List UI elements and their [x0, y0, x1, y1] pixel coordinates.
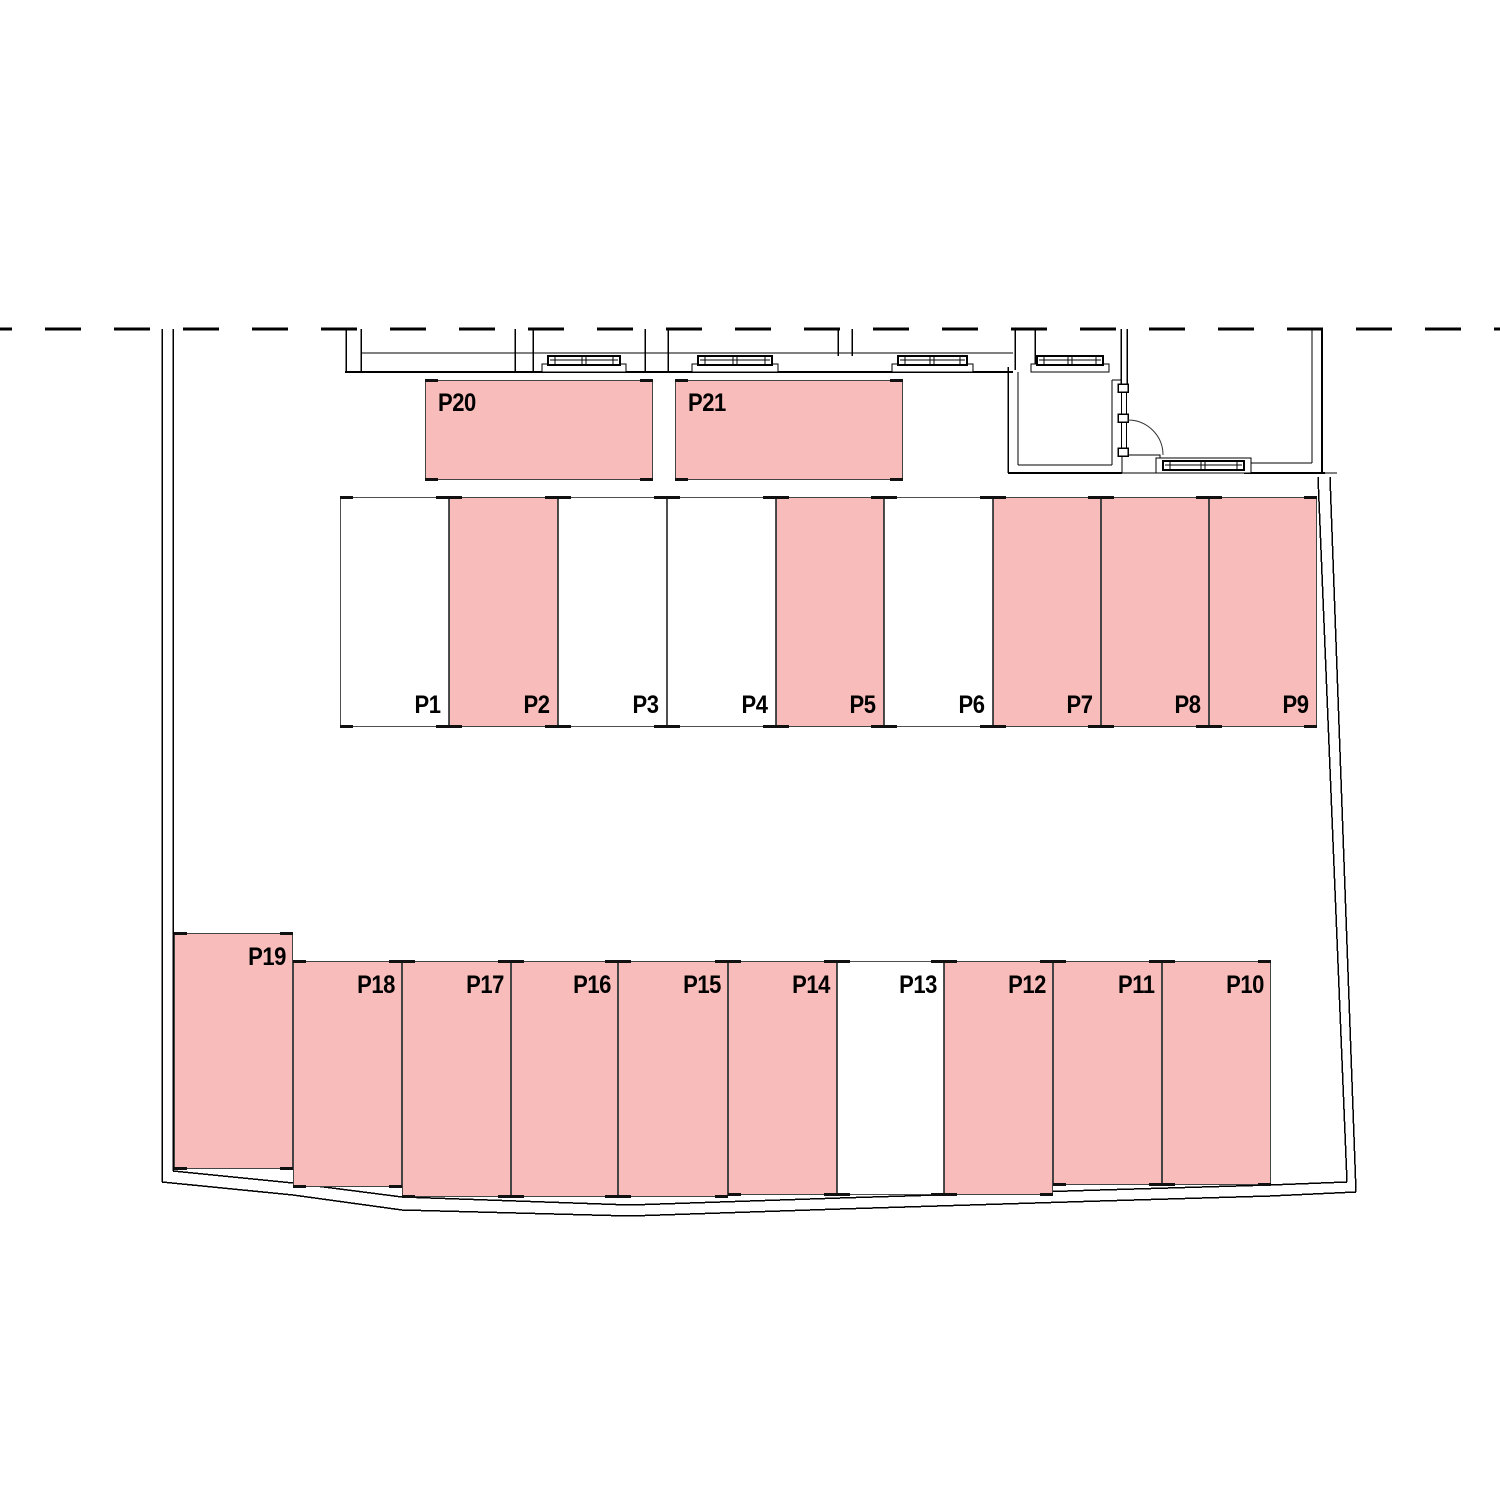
stall-P9[interactable]: P9 [1209, 497, 1317, 727]
stall-corner-tick [993, 725, 1006, 728]
stall-P2[interactable]: P2 [449, 497, 558, 727]
stall-corner-tick [436, 725, 449, 728]
stall-corner-tick [1304, 496, 1317, 499]
stall-label: P11 [1118, 971, 1155, 1000]
stall-P15[interactable]: P15 [618, 961, 728, 1197]
stall-corner-tick [425, 379, 438, 382]
stall-P14[interactable]: P14 [728, 961, 837, 1195]
stall-corner-tick [763, 725, 776, 728]
stall-corner-tick [640, 379, 653, 382]
stall-label: P10 [1226, 971, 1264, 1000]
stall-corner-tick [837, 960, 850, 963]
window-icon [1031, 356, 1109, 372]
stall-P20[interactable]: P20 [425, 380, 653, 480]
stall-corner-tick [884, 725, 897, 728]
stall-P5[interactable]: P5 [776, 497, 884, 727]
stall-P18[interactable]: P18 [293, 961, 402, 1187]
stall-P1[interactable]: P1 [340, 497, 449, 727]
stall-label: P14 [792, 971, 830, 1000]
stall-corner-tick [776, 725, 789, 728]
window-icon [692, 356, 778, 372]
stall-label: P15 [683, 971, 721, 1000]
stall-corner-tick [1209, 725, 1222, 728]
stall-corner-tick [545, 496, 558, 499]
stall-corner-tick [728, 960, 741, 963]
stall-P3[interactable]: P3 [558, 497, 667, 727]
stall-corner-tick [667, 725, 680, 728]
stall-corner-tick [1053, 1183, 1066, 1186]
parking-plan: P20P21P1P2P3P4P5P6P7P8P9P19P18P17P16P15P… [0, 0, 1500, 1500]
stall-corner-tick [293, 1185, 306, 1188]
stall-P4[interactable]: P4 [667, 497, 776, 727]
stall-corner-tick [884, 496, 897, 499]
stall-corner-tick [1088, 725, 1101, 728]
window-icon [892, 356, 973, 372]
stall-P17[interactable]: P17 [402, 961, 511, 1197]
stall-corner-tick [654, 725, 667, 728]
stall-label: P2 [524, 691, 550, 720]
stall-corner-tick [280, 932, 293, 935]
stall-label: P4 [742, 691, 768, 720]
stall-corner-tick [545, 725, 558, 728]
stall-corner-tick [890, 379, 903, 382]
stall-corner-tick [640, 478, 653, 481]
stall-corner-tick [558, 725, 571, 728]
stall-P21[interactable]: P21 [675, 380, 903, 480]
stall-corner-tick [618, 1195, 631, 1198]
stall-corner-tick [944, 1193, 957, 1196]
plan-drawing [0, 0, 1500, 1500]
stall-corner-tick [1088, 496, 1101, 499]
stall-corner-tick [715, 1195, 728, 1198]
stall-label: P13 [899, 971, 937, 1000]
stall-label: P20 [438, 389, 476, 418]
stall-corner-tick [618, 960, 631, 963]
stall-P7[interactable]: P7 [993, 497, 1101, 727]
stall-corner-tick [449, 725, 462, 728]
stall-label: P5 [850, 691, 876, 720]
stall-corner-tick [511, 960, 524, 963]
stall-corner-tick [340, 725, 353, 728]
stall-label: P16 [573, 971, 611, 1000]
stall-corner-tick [389, 960, 402, 963]
stall-corner-tick [944, 960, 957, 963]
stall-P16[interactable]: P16 [511, 961, 618, 1197]
stall-corner-tick [1101, 496, 1114, 499]
stall-corner-tick [511, 1195, 524, 1198]
door-swing-arc [1128, 420, 1163, 455]
stall-corner-tick [1162, 1183, 1175, 1186]
stall-P8[interactable]: P8 [1101, 497, 1209, 727]
door-icon [1118, 384, 1128, 456]
stall-corner-tick [1209, 496, 1222, 499]
stall-corner-tick [1196, 725, 1209, 728]
stall-corner-tick [174, 1167, 187, 1170]
stall-corner-tick [824, 1193, 837, 1196]
stall-corner-tick [890, 478, 903, 481]
stall-corner-tick [174, 932, 187, 935]
stall-corner-tick [498, 960, 511, 963]
stall-corner-tick [675, 478, 688, 481]
stall-label: P12 [1008, 971, 1046, 1000]
stall-corner-tick [1258, 960, 1271, 963]
stall-label: P8 [1175, 691, 1201, 720]
stall-corner-tick [728, 1193, 741, 1196]
stall-label: P1 [415, 691, 441, 720]
window-icon [542, 356, 626, 372]
stall-corner-tick [449, 496, 462, 499]
stall-corner-tick [871, 725, 884, 728]
stall-corner-tick [837, 1193, 850, 1196]
stall-corner-tick [280, 1167, 293, 1170]
stall-corner-tick [980, 496, 993, 499]
stall-corner-tick [605, 960, 618, 963]
stall-corner-tick [675, 379, 688, 382]
stall-corner-tick [1162, 960, 1175, 963]
stall-corner-tick [402, 1195, 415, 1198]
stall-label: P18 [357, 971, 395, 1000]
stall-corner-tick [1149, 960, 1162, 963]
stall-corner-tick [293, 960, 306, 963]
stall-label: P21 [688, 389, 726, 418]
stall-label: P6 [959, 691, 985, 720]
stall-corner-tick [1040, 960, 1053, 963]
stall-corner-tick [402, 960, 415, 963]
stall-corner-tick [824, 960, 837, 963]
stall-corner-tick [667, 496, 680, 499]
stall-corner-tick [1304, 725, 1317, 728]
stall-corner-tick [605, 1195, 618, 1198]
stall-corner-tick [715, 960, 728, 963]
stall-corner-tick [558, 496, 571, 499]
stall-corner-tick [1149, 1183, 1162, 1186]
stall-corner-tick [931, 1193, 944, 1196]
stall-corner-tick [993, 496, 1006, 499]
stall-corner-tick [1196, 496, 1209, 499]
stall-corner-tick [436, 496, 449, 499]
stall-corner-tick [340, 496, 353, 499]
stall-corner-tick [763, 496, 776, 499]
stall-corner-tick [1040, 1193, 1053, 1196]
window-icon [1156, 458, 1251, 473]
stall-corner-tick [931, 960, 944, 963]
stall-corner-tick [1053, 960, 1066, 963]
stall-label: P3 [633, 691, 659, 720]
stall-label: P17 [466, 971, 504, 1000]
stall-corner-tick [871, 496, 884, 499]
stall-P12[interactable]: P12 [944, 961, 1053, 1195]
stall-label: P19 [248, 943, 286, 972]
stall-label: P9 [1283, 691, 1309, 720]
stall-corner-tick [776, 496, 789, 499]
stall-corner-tick [498, 1195, 511, 1198]
stall-corner-tick [654, 496, 667, 499]
stall-P6[interactable]: P6 [884, 497, 993, 727]
stall-corner-tick [389, 1185, 402, 1188]
stall-P11[interactable]: P11 [1053, 961, 1162, 1185]
stall-corner-tick [980, 725, 993, 728]
stall-P13[interactable]: P13 [837, 961, 944, 1195]
stall-corner-tick [1101, 725, 1114, 728]
stall-label: P7 [1067, 691, 1093, 720]
stall-P10[interactable]: P10 [1162, 961, 1271, 1185]
stall-corner-tick [425, 478, 438, 481]
stall-P19[interactable]: P19 [174, 933, 293, 1169]
stall-corner-tick [1258, 1183, 1271, 1186]
